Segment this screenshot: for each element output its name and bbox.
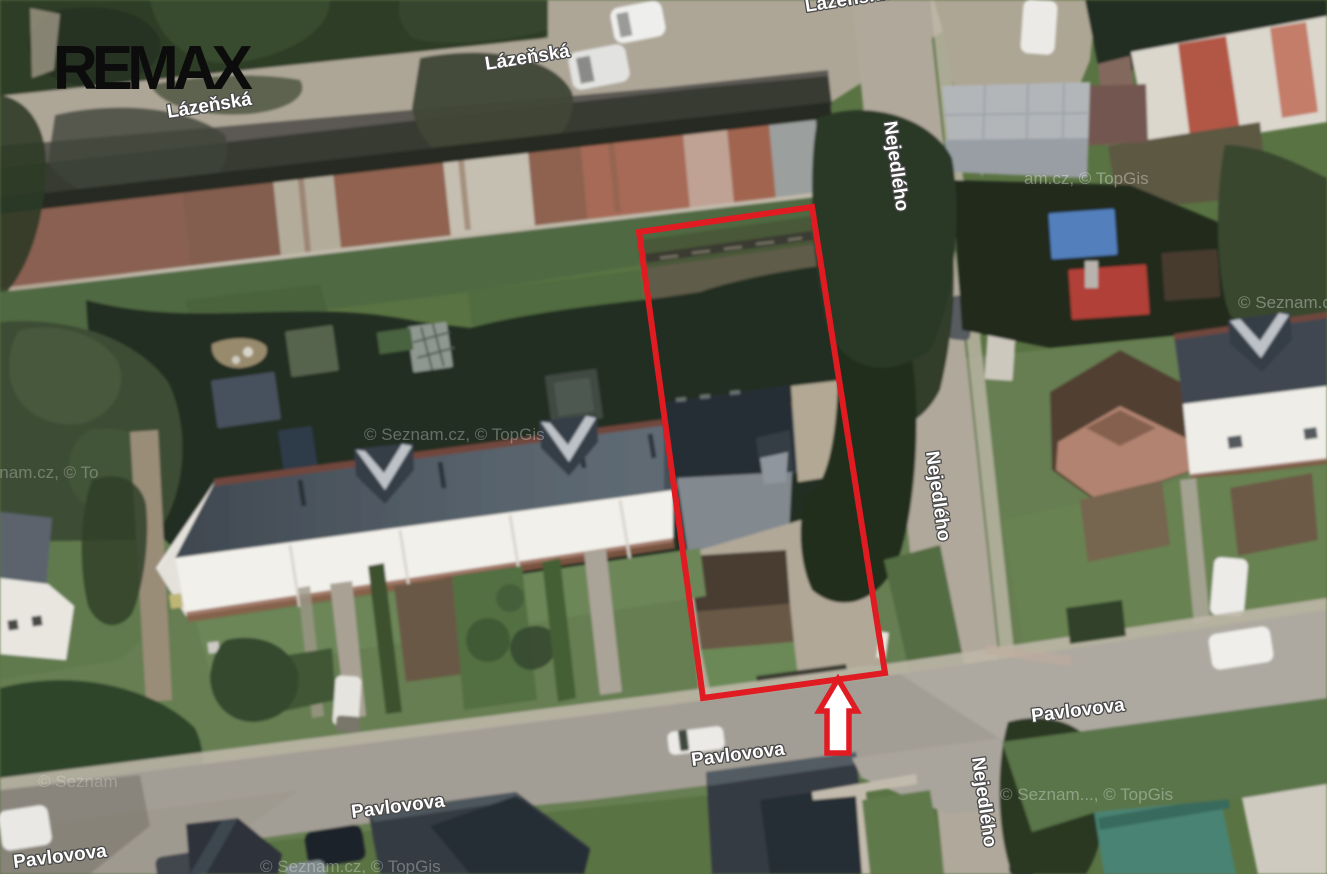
svg-text:© Seznam..., © TopGis: © Seznam..., © TopGis bbox=[1000, 785, 1173, 804]
svg-text:REMAX: REMAX bbox=[53, 34, 253, 103]
svg-text:© Seznam.cz: © Seznam.cz bbox=[1238, 293, 1327, 312]
svg-text:© Seznam.cz, © TopGis: © Seznam.cz, © TopGis bbox=[364, 425, 545, 444]
svg-text:am.cz, © TopGis: am.cz, © TopGis bbox=[1024, 169, 1149, 188]
svg-text:© Seznam.cz, © TopGis: © Seznam.cz, © TopGis bbox=[260, 857, 441, 874]
svg-text:© Seznam: © Seznam bbox=[38, 772, 118, 791]
svg-text:Seznam.cz, © To: Seznam.cz, © To bbox=[0, 463, 98, 482]
